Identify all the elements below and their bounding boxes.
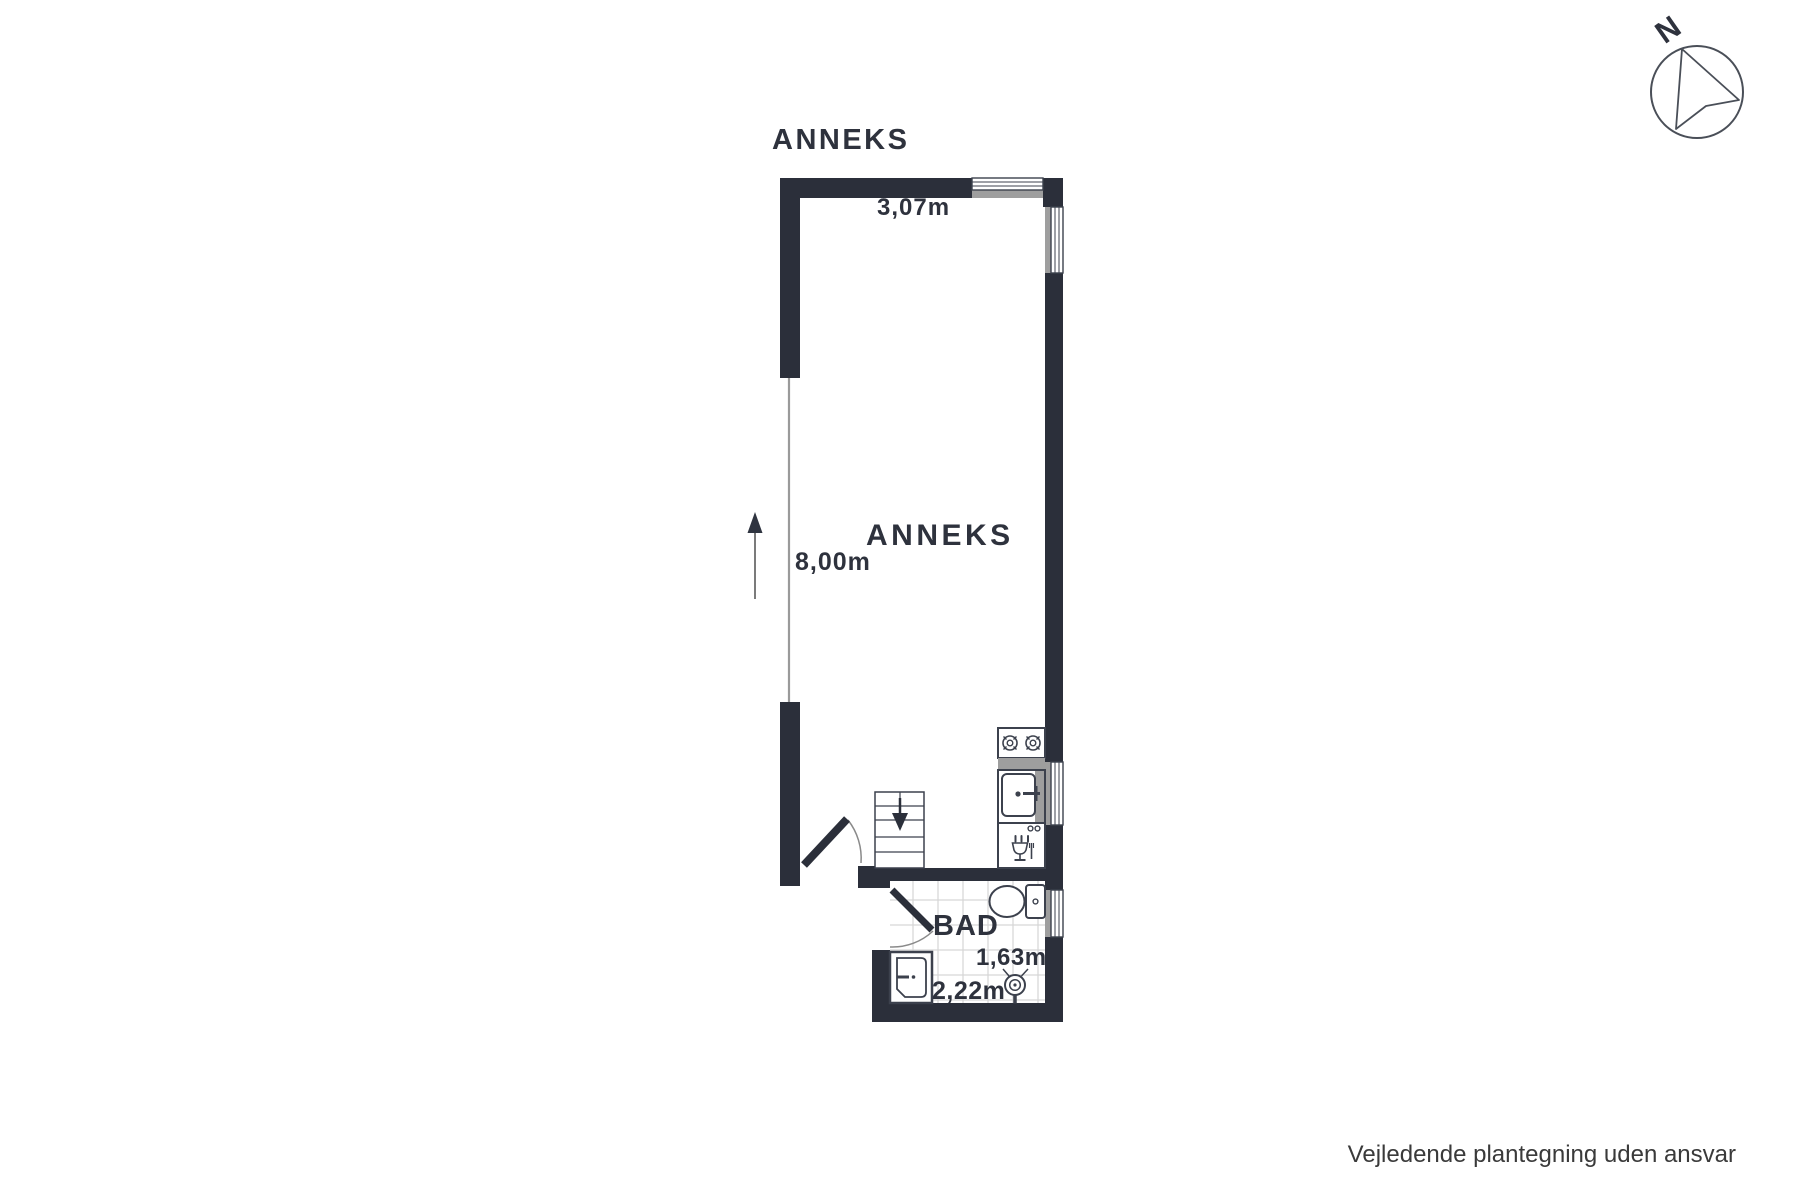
up-arrow-icon [748, 512, 763, 599]
washbasin-icon [890, 952, 932, 1003]
top-right-corner-block [1043, 178, 1063, 207]
bathroom-height-dimension: 1,63m [976, 944, 1047, 972]
right-wall-upper [1045, 273, 1063, 762]
bathroom-label: BAD [933, 910, 999, 943]
right-window-upper [1045, 207, 1063, 273]
entry-door [804, 819, 861, 865]
staircase [875, 792, 924, 868]
shower-head-icon [1005, 975, 1025, 1004]
kitchen-sink-icon [998, 770, 1045, 823]
disclaimer-text: Vejledende plantegning uden ansvar [1348, 1141, 1736, 1169]
north-compass-icon [1651, 46, 1743, 138]
top-width-dimension: 3,07m [877, 194, 950, 222]
divider-wall [858, 868, 1045, 881]
room-label: ANNEKS [866, 519, 1014, 553]
floor-plan [0, 0, 1800, 1200]
right-wall-mid [1045, 825, 1063, 890]
bathroom-width-dimension: 2,22m [932, 977, 1005, 1006]
right-window-kitchen [1045, 762, 1063, 825]
dishwasher-icon [998, 823, 1045, 868]
left-height-dimension: 8,00m [795, 548, 871, 577]
plan-title: ANNEKS [772, 124, 909, 157]
counter-strip [998, 758, 1045, 770]
top-window [972, 178, 1043, 198]
left-wall-upper [780, 178, 800, 378]
kitchen-unit [998, 728, 1045, 868]
stove-burners-icon [998, 728, 1045, 758]
bath-door [890, 890, 933, 947]
left-wall-lower [780, 702, 800, 886]
right-window-bath [1045, 890, 1063, 937]
